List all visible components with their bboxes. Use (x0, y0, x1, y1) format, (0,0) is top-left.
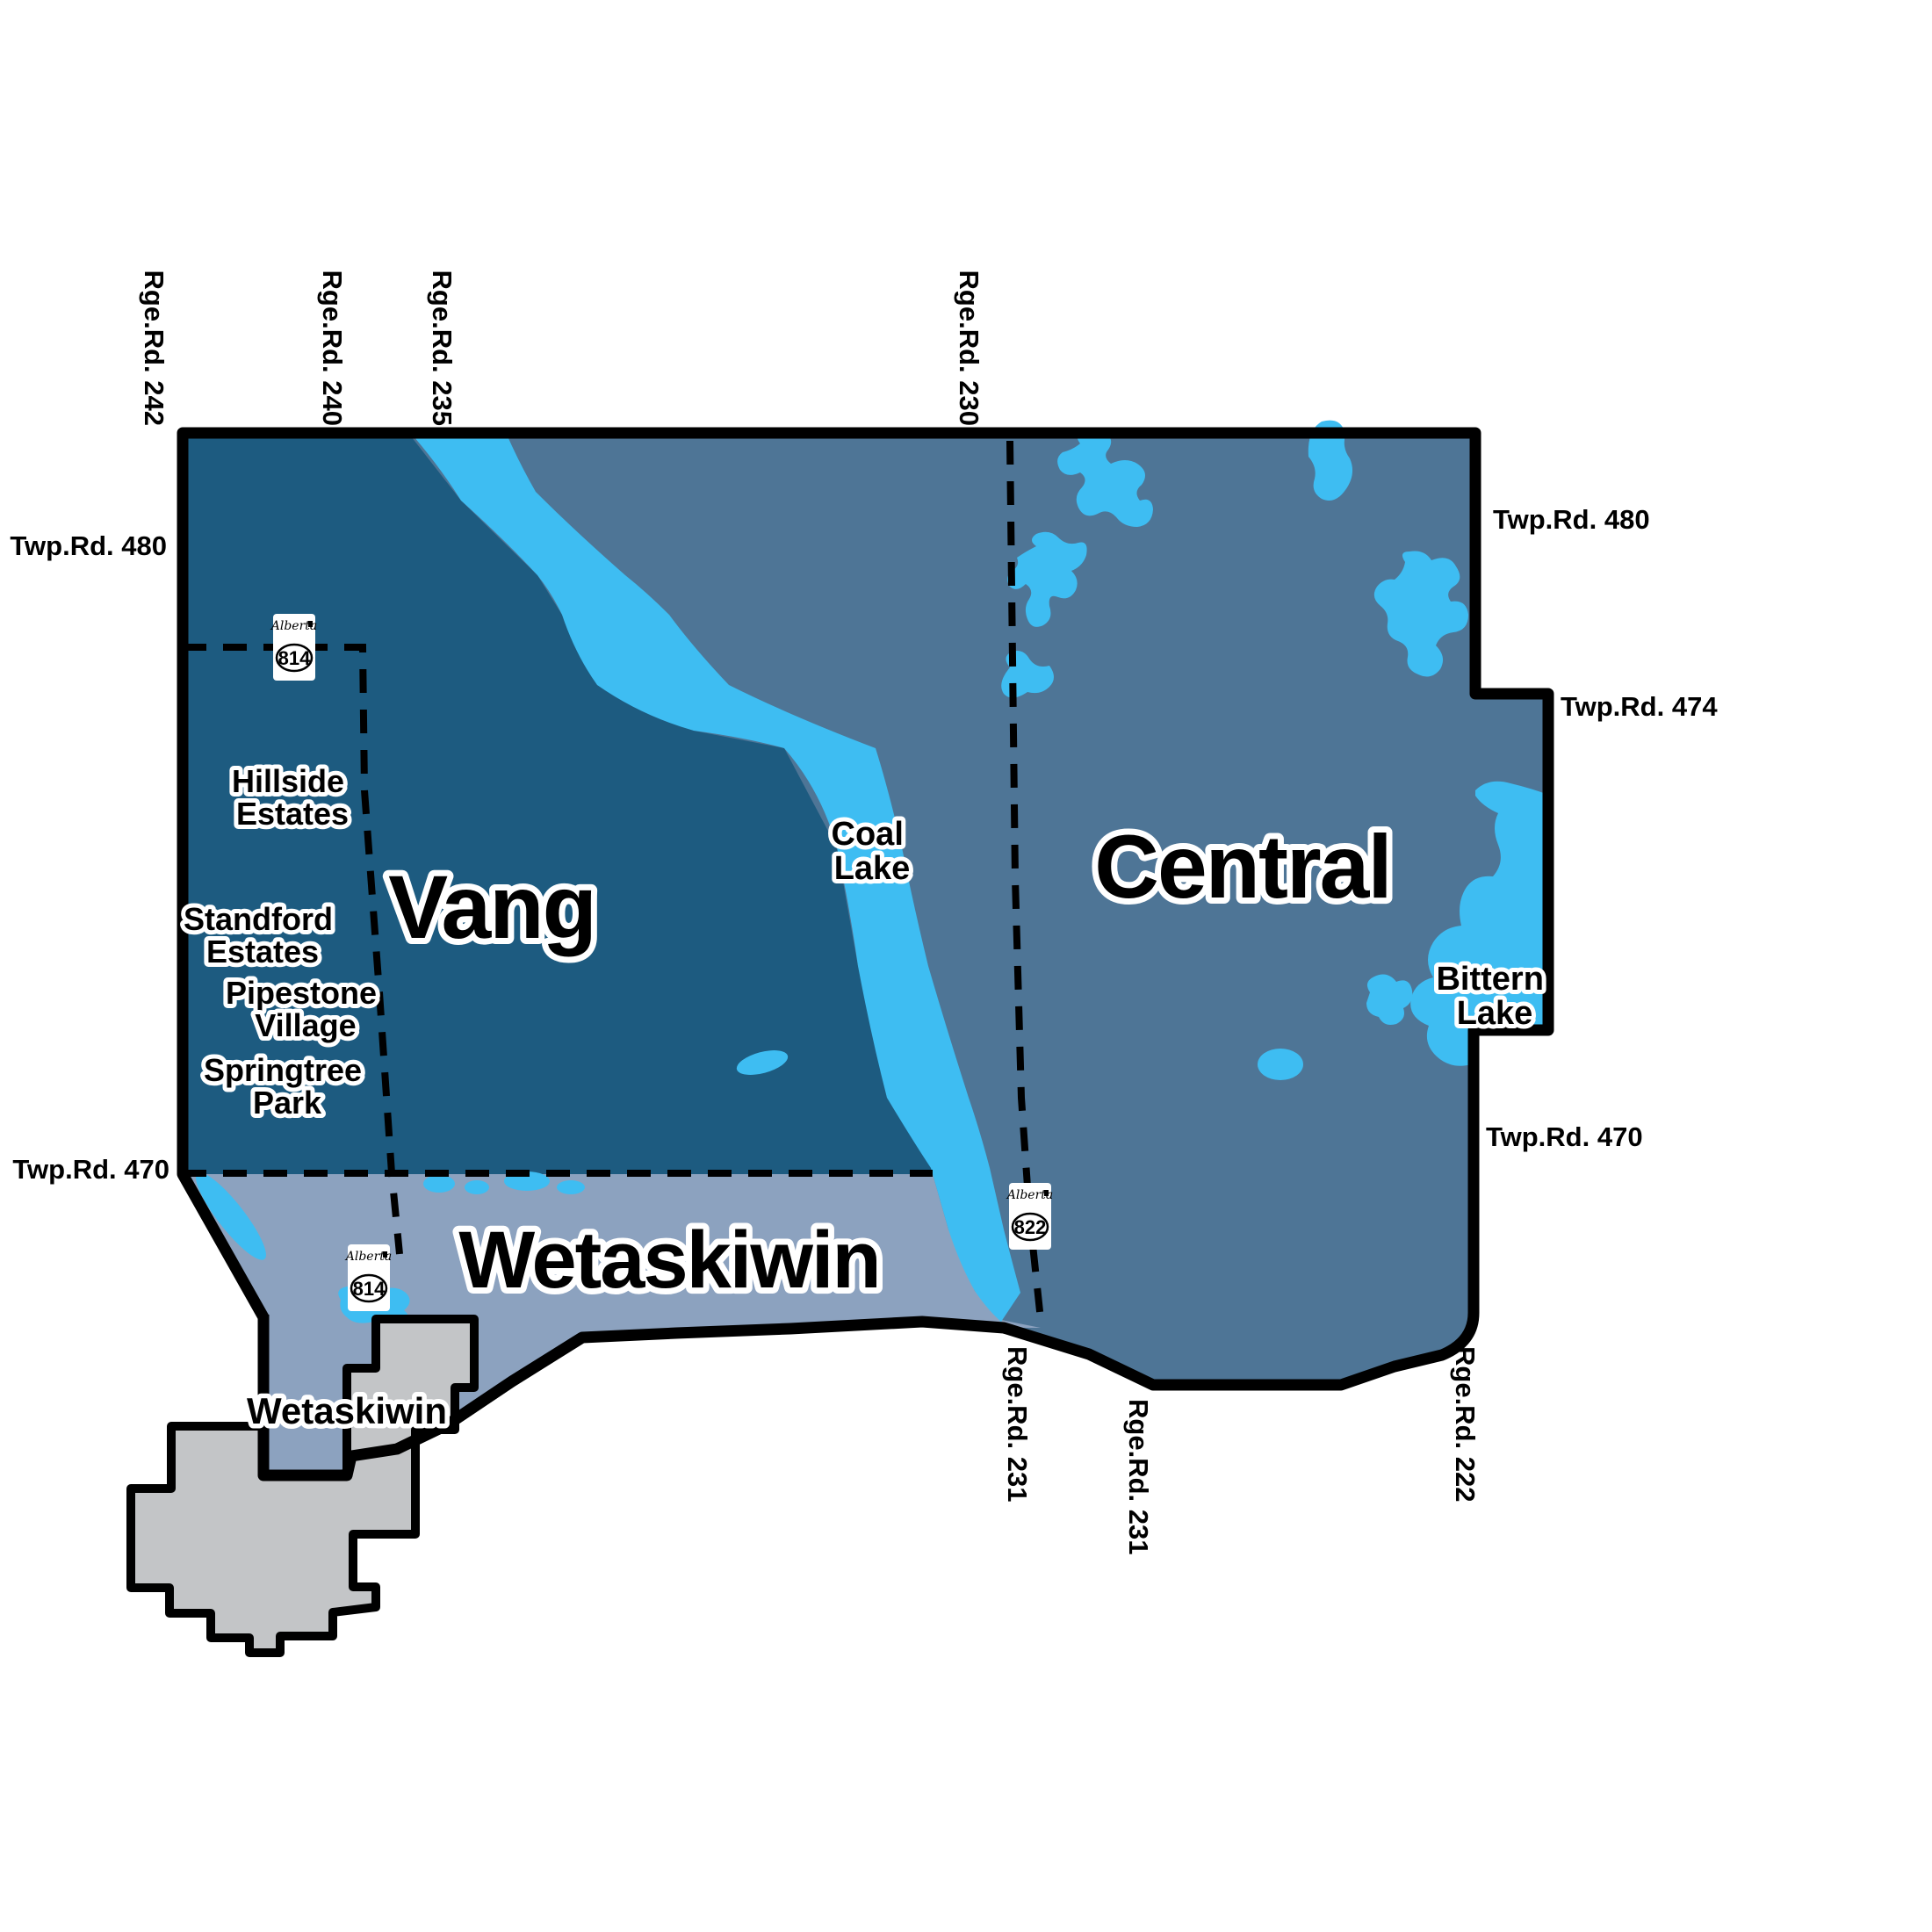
label-twp-rd-480-right: Twp.Rd. 480 (1493, 504, 1650, 535)
label-rge-rd-235: Rge.Rd. 235 (427, 270, 458, 426)
pond-470-a (423, 1175, 455, 1193)
label-hillside-estates: Hillside Estates (232, 763, 353, 832)
pond-470-b (465, 1180, 489, 1194)
label-rge-rd-222: Rge.Rd. 222 (1450, 1346, 1481, 1502)
svg-text:814: 814 (353, 1278, 386, 1300)
label-region-wetaskiwin-division: Wetaskiwin (458, 1215, 879, 1305)
label-rge-rd-240: Rge.Rd. 240 (317, 270, 348, 426)
label-rge-rd-242: Rge.Rd. 242 (139, 270, 169, 426)
svg-text:822: 822 (1014, 1216, 1047, 1238)
hwy-814-shield-south: Alberta 814 (344, 1244, 393, 1311)
svg-text:814: 814 (278, 647, 311, 669)
label-city-wetaskiwin: Wetaskiwin (247, 1390, 447, 1431)
label-twp-rd-470-left: Twp.Rd. 470 (12, 1154, 169, 1185)
label-twp-rd-474-right: Twp.Rd. 474 (1561, 691, 1718, 722)
label-region-vang: Vang (388, 857, 595, 957)
label-rge-rd-231-west: Rge.Rd. 231 (1002, 1346, 1033, 1502)
label-region-central: Central (1094, 817, 1390, 917)
pond-central-south (1258, 1049, 1303, 1080)
label-twp-rd-480-left: Twp.Rd. 480 (10, 530, 167, 561)
pond-470-d (557, 1180, 585, 1194)
map-stage: Vang Central Wetaskiwin Wetaskiwin Hills… (0, 0, 1932, 1932)
label-rge-rd-230: Rge.Rd. 230 (954, 270, 984, 426)
label-twp-rd-470-right: Twp.Rd. 470 (1486, 1121, 1643, 1152)
hwy-814-shield-north: Alberta 814 (270, 614, 318, 681)
county-divisions-map: Vang Central Wetaskiwin Wetaskiwin Hills… (0, 0, 1932, 1932)
label-standford-estates: Standford Estates (184, 901, 342, 970)
hwy-822-shield: Alberta 822 (1006, 1183, 1054, 1250)
label-rge-rd-231-east: Rge.Rd. 231 (1123, 1399, 1154, 1554)
label-coal-lake: Coal Lake (832, 816, 913, 887)
